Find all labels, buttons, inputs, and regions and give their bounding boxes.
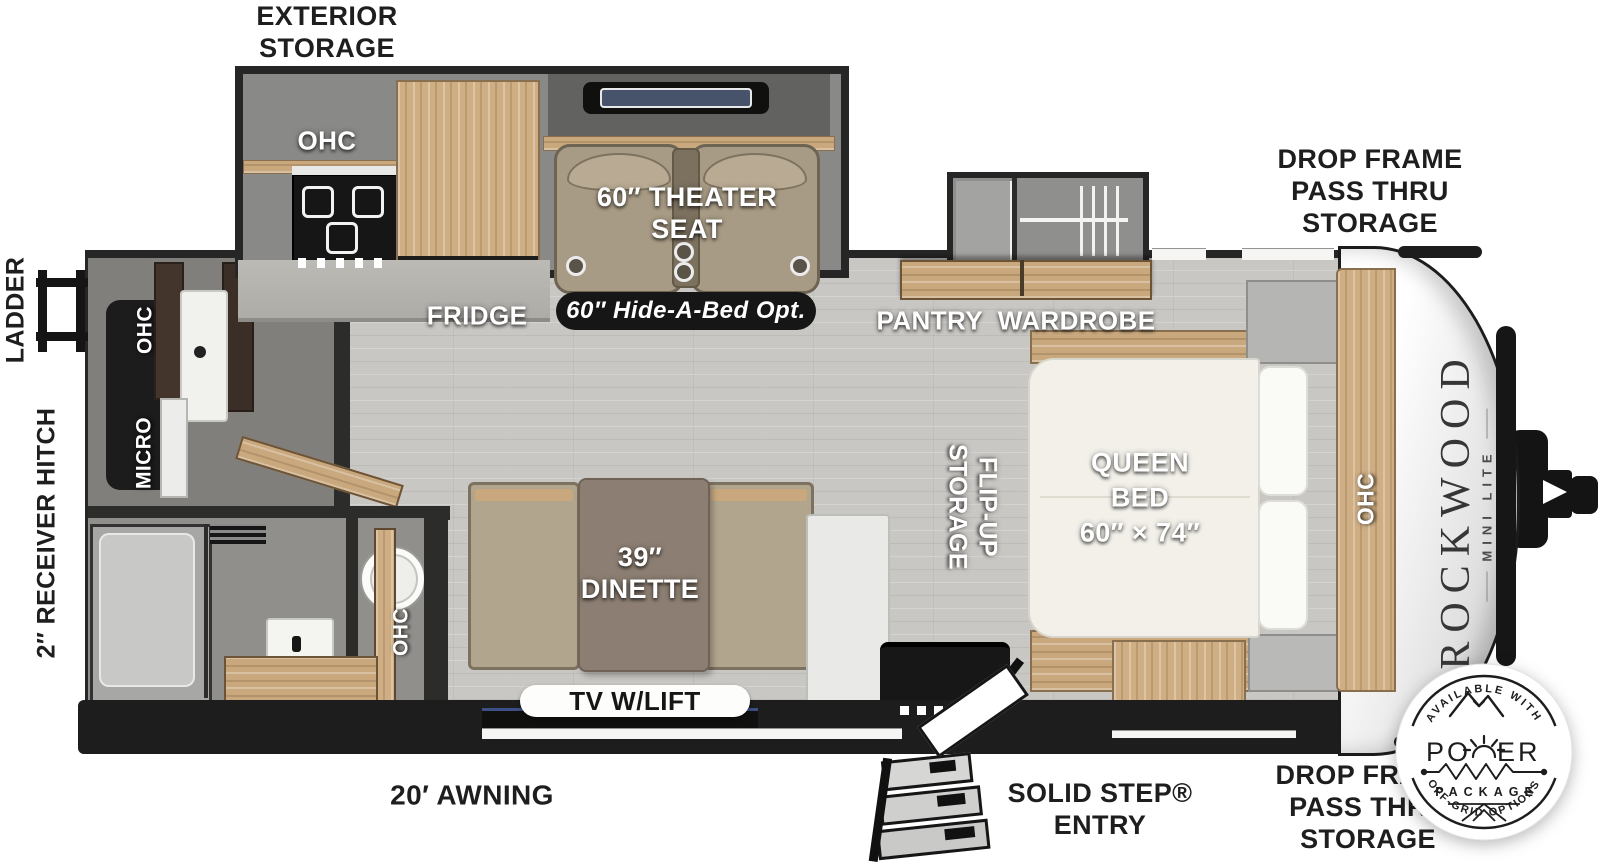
label-fridge: FRIDGE	[427, 301, 528, 332]
label-ohc-bed: OHC	[1352, 473, 1379, 525]
overhead-cabinets-gap	[1020, 260, 1024, 296]
label-flip-up-storage: FLIP-UP STORAGE	[943, 444, 1002, 570]
label-solid-step: SOLID STEP® ENTRY	[1008, 778, 1193, 842]
dinette-bench-left	[468, 482, 580, 670]
galley-faucet	[194, 346, 206, 358]
floorplan-canvas: EXTERIOR STORAGE DROP FRAME PASS THRU ST…	[0, 0, 1600, 868]
label-ladder: LADDER	[1, 257, 31, 364]
nightstand-bottom	[1248, 634, 1342, 692]
hide-a-bed-text: 60″ Hide-A-Bed Opt.	[566, 297, 806, 325]
shower-vent	[210, 524, 266, 544]
tv-lift-pill: TV W/LIFT	[520, 685, 750, 717]
range-grate-1	[302, 186, 334, 218]
label-ohc-bath: OHC	[390, 608, 415, 656]
label-queen-bed: QUEEN BED 60″ × 74″	[1080, 445, 1200, 550]
refrigerator	[396, 80, 540, 262]
label-exterior-storage: EXTERIOR STORAGE	[256, 1, 397, 65]
label-ohc-rear: OHC	[134, 306, 159, 354]
hide-a-bed-badge: 60″ Hide-A-Bed Opt.	[556, 292, 816, 330]
folding-steps-icon	[868, 746, 1003, 868]
bathroom-right-wall	[424, 515, 448, 701]
window-strip-bottom-right	[1112, 730, 1296, 738]
label-ohc-slide: OHC	[298, 126, 357, 157]
vanity-faucet	[292, 636, 301, 652]
range-top-trim	[292, 166, 396, 175]
ladder-icon	[30, 268, 96, 354]
range-grate-3	[326, 222, 358, 254]
shower-pan	[99, 533, 195, 687]
label-micro: MICRO	[133, 417, 158, 489]
pillow-1	[1258, 366, 1308, 496]
range-knobs	[298, 258, 390, 268]
label-theater-seat: 60″ THEATER SEAT	[597, 182, 777, 246]
pantry-shelves	[956, 181, 1014, 261]
badge-power-right: ER	[1497, 737, 1541, 767]
power-package-badge: AVAILABLE WITH OFF-GRID OPTIONS PO ER PA…	[1392, 660, 1576, 844]
side-cabinet	[806, 514, 890, 704]
window-strip-top-1	[1152, 248, 1206, 260]
mini-lite-text: MINI LITE	[1480, 448, 1495, 561]
pillow-2	[1258, 500, 1308, 630]
vanity-cabinet	[224, 656, 378, 706]
cupholder-2	[674, 262, 694, 282]
slide-window-glass	[600, 88, 752, 108]
label-drop-frame-top: DROP FRAME PASS THRU STORAGE	[1277, 144, 1462, 240]
label-awning: 20′ AWNING	[390, 778, 554, 811]
mini-lite-rule-left	[1487, 572, 1488, 602]
badge-power-left: PO	[1426, 737, 1471, 767]
label-pantry-wardrobe: PANTRY WARDROBE	[877, 306, 1156, 337]
range-grate-2	[352, 186, 384, 218]
cap-roof-trim-top	[1398, 246, 1482, 258]
overhead-cabinets-wardrobe	[900, 260, 1152, 300]
underbed-cabinet	[1112, 640, 1246, 704]
window-strip-bottom-left	[482, 728, 902, 739]
nightstand-top	[1246, 280, 1342, 364]
step-3	[876, 819, 991, 861]
shower-glass-divider	[204, 524, 208, 698]
tv-lift-text: TV W/LIFT	[569, 686, 701, 717]
mini-lite-rule-right	[1487, 408, 1488, 438]
wardrobe-divider	[1012, 178, 1017, 262]
cap-accent-blade	[1496, 326, 1516, 666]
label-receiver-hitch: 2″ RECEIVER HITCH	[32, 408, 62, 659]
badge-package: PACKAGE	[1435, 785, 1539, 799]
hitch-coupler	[1570, 476, 1598, 514]
dinette-bench-right	[704, 482, 814, 670]
label-dinette: 39″ DINETTE	[581, 542, 699, 606]
cupholder-4	[790, 256, 810, 276]
step-1	[881, 752, 974, 791]
rockwood-logo: ROCKWOOD	[1432, 350, 1480, 669]
wardrobe-hangers	[1080, 186, 1128, 256]
mini-lite-logo: MINI LITE	[1480, 408, 1495, 601]
cupholder-3	[566, 256, 586, 276]
microwave	[160, 398, 188, 498]
window-strip-top-2	[1242, 248, 1334, 260]
